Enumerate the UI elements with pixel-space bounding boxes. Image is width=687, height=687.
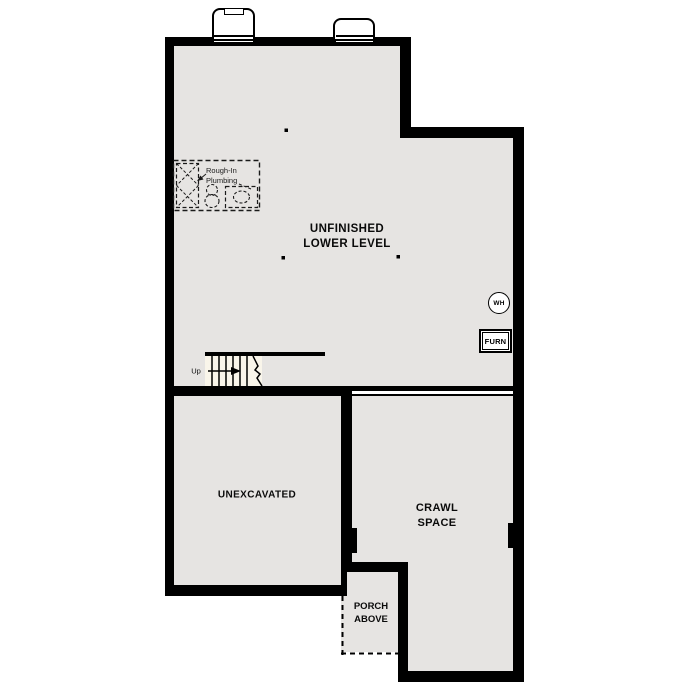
room-label-unexcavated: UNEXCAVATED [218,490,296,501]
support-post-dot [285,129,289,133]
support-post-dot [397,255,401,259]
furnace-symbol: FURN [479,329,512,353]
tub-rough-in [177,164,199,208]
sink-drain-rough-in [234,191,250,203]
water-heater-symbol: WH [488,292,510,314]
room-label-crawl-space: CRAWL SPACE [416,501,458,531]
stairs-up-label: Up [191,367,201,376]
rough-in-plumbing-label: Rough-In Plumbing [206,166,237,186]
plan-lineart [0,0,687,687]
furnace-label: FURN [482,332,509,350]
room-label-porch-above: PORCH ABOVE [354,601,388,627]
support-post-dot [282,256,286,260]
tub-cross-bracing [177,164,199,208]
toilet-tank-rough-in [207,185,218,196]
room-label-unfinished-lower-level: UNFINISHED LOWER LEVEL [303,222,390,252]
stair-break-line [253,356,262,386]
water-heater-label: WH [493,300,504,307]
toilet-bowl-rough-in [205,195,219,208]
floor-plan: WH FURN UNFINISHED LOWER LEVEL UNEXCAVAT… [0,0,687,687]
sink-rough-in-box [226,187,258,208]
